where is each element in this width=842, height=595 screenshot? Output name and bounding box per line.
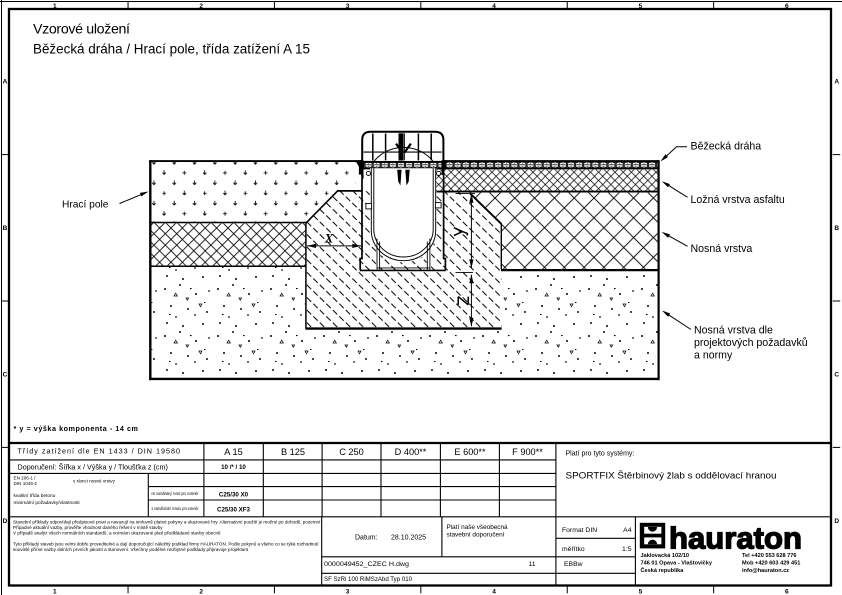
svg-text:a normy: a normy [694,350,733,362]
svg-text:Platí naše všeobecná: Platí naše všeobecná [447,524,509,531]
svg-text:B: B [3,225,8,232]
svg-text:B 125: B 125 [281,447,305,457]
svg-text:kvalitní třída betonu: kvalitní třída betonu [14,493,56,499]
svg-text:1: 1 [53,588,57,595]
svg-text:ne namáhaný mraz pro exteriér: ne namáhaný mraz pro exteriér [152,491,199,496]
svg-text:1: 1 [53,3,57,10]
svg-text:5: 5 [639,3,643,10]
svg-text:Běžecká dráha / Hrací pole, tř: Běžecká dráha / Hrací pole, třída zatíže… [33,42,310,58]
svg-text:B: B [834,225,839,232]
svg-text:Datum:: Datum: [355,535,378,542]
svg-text:2: 2 [199,588,203,595]
svg-text:3: 3 [346,588,350,595]
svg-text:F 900**: F 900** [512,447,543,457]
svg-text:6: 6 [785,588,789,595]
svg-text:s namáháním mrazu pro exteriér: s namáháním mrazu pro exteriér [152,506,199,511]
svg-text:projektových požadavků: projektových požadavků [694,337,808,349]
svg-text:28.10.2025: 28.10.2025 [391,535,426,542]
svg-text:SPORTFIX Štěrbinový žlab s odd: SPORTFIX Štěrbinový žlab s oddělovací hr… [566,470,777,481]
svg-text:C: C [3,372,8,379]
svg-text:Format DIN: Format DIN [562,527,597,534]
svg-text:1:5: 1:5 [622,546,632,553]
svg-text:Jaklovacká 102/10: Jaklovacká 102/10 [641,553,690,559]
svg-text:Běžecká dráha: Běžecká dráha [691,141,762,153]
svg-text:4: 4 [492,3,496,10]
svg-text:v rámci nosné vrstvy: v rámci nosné vrstvy [73,479,116,484]
svg-text:Ložná vrstva asfaltu: Ložná vrstva asfaltu [691,194,785,206]
svg-text:746 01 Opava - Vlaštovičky: 746 01 Opava - Vlaštovičky [641,561,713,567]
svg-text:C25/30 XF3: C25/30 XF3 [217,506,251,513]
svg-text:0000049452_CZEC H.dwg: 0000049452_CZEC H.dwg [324,561,409,568]
svg-text:DIN 1045-2: DIN 1045-2 [14,481,38,486]
svg-text:Platí pro tyto systémy:: Platí pro tyto systémy: [566,450,635,457]
svg-text:V případě analýz všech normáln: V případě analýz všech normálních standa… [13,530,221,536]
svg-text:Hrací pole: Hrací pole [62,200,109,211]
svg-text:4: 4 [492,588,496,595]
svg-text:5: 5 [639,588,643,595]
svg-text:Česká republika: Česká republika [641,567,685,574]
svg-text:souvislé přímé vazby dolních p: souvislé přímé vazby dolních prvních jak… [13,547,249,552]
svg-text:10 /* / 10: 10 /* / 10 [221,464,246,471]
svg-text:D: D [3,518,8,525]
svg-text:D: D [834,518,839,525]
svg-text:6: 6 [785,3,789,10]
svg-text:Vzorové uložení: Vzorové uložení [33,22,130,38]
svg-text:hauraton: hauraton [669,521,802,556]
svg-text:Třídy zatížení dle EN 1433 / D: Třídy zatížení dle EN 1433 / DIN 19580 [18,447,181,456]
svg-text:měřítko: měřítko [562,546,585,553]
svg-text:E 600**: E 600** [454,447,486,457]
svg-text:EN 206-1 /: EN 206-1 / [14,475,37,480]
svg-text:11: 11 [528,561,535,568]
svg-text:* y = výška komponenta - 14 c: * y = výška komponenta - 14 cm [14,424,139,433]
svg-text:Případné aktuální vazby, prově: Případné aktuální vazby, prověřte vhodno… [13,525,163,530]
svg-text:info@hauraton.cz: info@hauraton.cz [742,568,789,574]
svg-text:SF SzRi 100 RiMSzAbd Typ 010: SF SzRi 100 RiMSzAbd Typ 010 [324,576,412,583]
svg-text:Tel +420 553 628 776: Tel +420 553 628 776 [742,553,796,559]
svg-text:X: X [324,231,334,246]
svg-text:C 250: C 250 [339,447,364,457]
svg-text:Mob +420 603 429 451: Mob +420 603 429 451 [742,561,800,567]
svg-text:minimální požadavky/vlastnosti: minimální požadavky/vlastnosti [14,500,80,506]
svg-text:C25/30 X0: C25/30 X0 [219,491,249,498]
svg-text:EBBw: EBBw [564,561,583,568]
svg-text:Nosná vrstva: Nosná vrstva [691,243,753,255]
svg-text:A: A [834,79,839,86]
svg-text:2: 2 [199,3,203,10]
svg-text:A 15: A 15 [224,447,242,457]
svg-text:3: 3 [346,3,350,10]
svg-text:Nosná vrstva dle: Nosná vrstva dle [694,325,773,337]
svg-text:A: A [3,79,8,86]
svg-text:Doporučení: Šířka x / Výška y: Doporučení: Šířka x / Výška y / Tloušťka… [18,462,168,471]
svg-text:Stavební příklady odpovídají p: Stavební příklady odpovídají předpisové … [13,520,321,525]
svg-text:A4: A4 [623,527,632,534]
svg-text:Tyto příklady staveb jsou velm: Tyto příklady staveb jsou velmi dobře pr… [13,541,319,547]
svg-text:D 400**: D 400** [395,447,427,457]
svg-text:stavební doporučení: stavební doporučení [447,531,505,538]
svg-text:C: C [834,372,839,379]
